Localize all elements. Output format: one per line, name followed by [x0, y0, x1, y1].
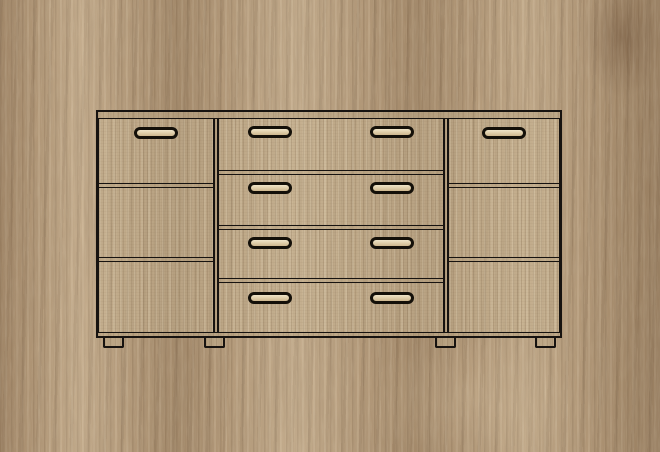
- drawer-handle-icon: [370, 182, 414, 194]
- door-handle-icon: [134, 127, 178, 139]
- cabinet-foot-2: [204, 338, 225, 348]
- drawer-handle-icon: [248, 237, 292, 249]
- cabinet-body: [96, 119, 562, 332]
- drawer-4: [219, 283, 443, 332]
- drawer-2: [219, 175, 443, 225]
- cabinet-top-board: [96, 110, 562, 119]
- cabinet-foot-1: [103, 338, 124, 348]
- drawer-handle-icon: [248, 292, 292, 304]
- right-door-panel-bottom: [449, 262, 559, 332]
- right-door-panel-middle: [449, 188, 559, 257]
- plinth: [96, 332, 562, 338]
- drawer-handle-icon: [248, 182, 292, 194]
- center-drawer-stack: [219, 119, 443, 332]
- drawer-handle-icon: [370, 126, 414, 138]
- right-door: [449, 119, 559, 332]
- background-woodgrain: [0, 0, 660, 452]
- left-door-panel-top: [99, 119, 213, 183]
- cabinet-foot-3: [435, 338, 456, 348]
- drawer-handle-icon: [370, 292, 414, 304]
- drawer-handle-icon: [248, 126, 292, 138]
- drawer-handle-icon: [370, 237, 414, 249]
- cabinet-foot-4: [535, 338, 556, 348]
- sideboard-illustration: [96, 110, 562, 338]
- left-door-panel-middle: [99, 188, 213, 257]
- door-handle-icon: [482, 127, 526, 139]
- right-door-panel-top: [449, 119, 559, 183]
- drawer-1: [219, 119, 443, 170]
- drawer-3: [219, 230, 443, 278]
- left-door: [99, 119, 213, 332]
- left-door-panel-bottom: [99, 262, 213, 332]
